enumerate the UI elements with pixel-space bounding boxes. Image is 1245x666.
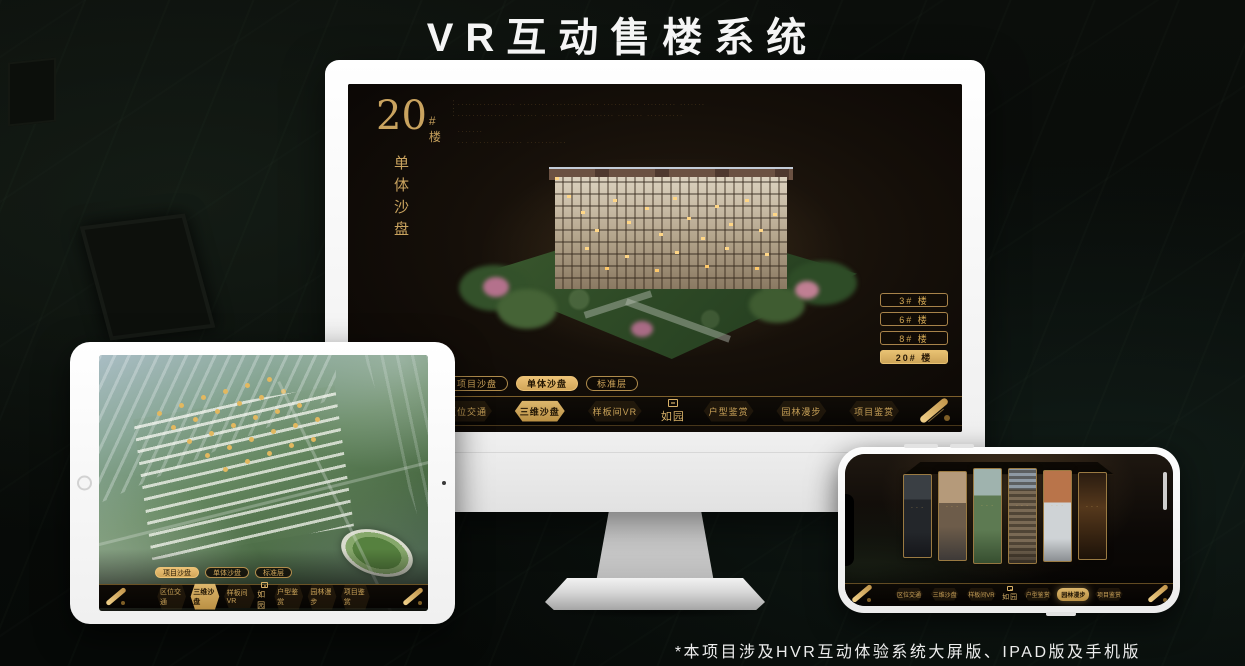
flower-tree bbox=[631, 321, 653, 337]
gallery-card[interactable] bbox=[1078, 472, 1107, 560]
flower-tree bbox=[483, 277, 509, 297]
phone-screen: 区位交通 三维沙盘 样板间VR 如园 户型鉴赏 园林漫步 项目鉴赏 bbox=[845, 454, 1173, 606]
volume-button[interactable] bbox=[904, 444, 938, 448]
residential-building bbox=[555, 177, 787, 289]
nav-item-location[interactable]: 区位交通 bbox=[155, 584, 188, 610]
floor-button-6[interactable]: 6# 楼 bbox=[880, 312, 948, 326]
tab-standard-floor[interactable]: 标准层 bbox=[255, 567, 292, 578]
nav-item-3d-sandbox[interactable]: 三维沙盘 bbox=[929, 588, 961, 601]
description-line: ··· ·············· ··········· bbox=[458, 138, 898, 149]
nav-item-garden-walk[interactable]: 园林漫步 bbox=[305, 584, 338, 610]
sandbox-sub-tabs: 项目沙盘 单体沙盘 标准层 bbox=[446, 376, 638, 391]
flower-tree bbox=[795, 281, 819, 299]
scroll-brush-icon[interactable] bbox=[105, 587, 125, 607]
floor-button-8[interactable]: 8# 楼 bbox=[880, 331, 948, 345]
seal-icon bbox=[1007, 586, 1013, 591]
building-facade bbox=[555, 177, 787, 289]
scroll-brush-tip bbox=[867, 598, 871, 602]
background-sign bbox=[8, 57, 56, 126]
brand-logo: 如园 bbox=[257, 582, 272, 611]
tab-project-sandbox[interactable]: 项目沙盘 bbox=[446, 376, 508, 391]
block-suffix: #楼 bbox=[429, 114, 447, 145]
phone-notch bbox=[845, 494, 854, 566]
nav-item-model-room-vr[interactable]: 样板间VR bbox=[222, 585, 258, 608]
nav-item-3d-sandbox[interactable]: 三维沙盘 bbox=[188, 584, 221, 610]
footnote: *本项目涉及HVR互动体验系统大屏版、IPAD版及手机版 bbox=[675, 638, 1141, 662]
tab-single-sandbox[interactable]: 单体沙盘 bbox=[205, 567, 249, 578]
seal-icon bbox=[261, 582, 268, 588]
volume-button[interactable] bbox=[950, 444, 974, 448]
scroll-brush-icon[interactable] bbox=[1147, 584, 1167, 604]
gallery-card[interactable] bbox=[903, 474, 932, 558]
tab-standard-floor[interactable]: 标准层 bbox=[586, 376, 638, 391]
brand-logo: 如园 bbox=[661, 399, 685, 424]
nav-item-floorplan[interactable]: 户型鉴赏 bbox=[1022, 588, 1054, 601]
page-title: VR互动售楼系统 bbox=[0, 5, 1245, 63]
tab-project-sandbox[interactable]: 项目沙盘 bbox=[155, 567, 199, 578]
bottom-nav-bar: 区位交通 三维沙盘 样板间VR 如园 户型鉴赏 园林漫步 项目鉴赏 bbox=[845, 583, 1173, 604]
description-line: ················ ········ ············· … bbox=[458, 100, 898, 111]
gallery-card[interactable] bbox=[1043, 470, 1072, 562]
description-line: ·············· ······· ·········· ······… bbox=[458, 111, 898, 122]
block-side-marks: ····· bbox=[450, 100, 456, 118]
nav-item-garden-walk[interactable]: 园林漫步 bbox=[1057, 588, 1089, 601]
camera-dot bbox=[442, 481, 446, 485]
monitor-stand-neck bbox=[595, 508, 715, 588]
building-markers[interactable] bbox=[157, 411, 162, 416]
sandbox-sub-tabs: 项目沙盘 单体沙盘 标准层 bbox=[155, 567, 292, 578]
nav-item-location[interactable]: 区位交通 bbox=[893, 588, 925, 601]
scroll-brush-icon[interactable] bbox=[918, 399, 950, 423]
bottom-nav-bar: 区位交通 三维沙盘 样板间VR 如园 户型鉴赏 园林漫步 项目鉴赏 bbox=[99, 584, 428, 608]
ipad-device: 项目沙盘 单体沙盘 标准层 区位交通 三维沙盘 样板间VR 如园 户型鉴赏 园林… bbox=[70, 342, 455, 624]
power-button[interactable] bbox=[1046, 612, 1076, 616]
nav-item-model-room-vr[interactable]: 样板间VR bbox=[964, 588, 998, 601]
scroll-brush-tip bbox=[121, 601, 125, 605]
description-paragraph: ················ ········ ············· … bbox=[458, 100, 898, 149]
scroll-brush-tip bbox=[1163, 598, 1167, 602]
floor-button-20[interactable]: 20# 楼 bbox=[880, 350, 948, 364]
floor-button-3[interactable]: 3# 楼 bbox=[880, 293, 948, 307]
tab-single-sandbox[interactable]: 单体沙盘 bbox=[516, 376, 578, 391]
brand-logo-text: 如园 bbox=[661, 408, 685, 424]
home-button[interactable] bbox=[77, 476, 92, 491]
nav-item-floorplan[interactable]: 户型鉴赏 bbox=[700, 401, 758, 422]
scroll-brush-tip bbox=[418, 601, 422, 605]
brand-logo-text: 如园 bbox=[257, 589, 272, 611]
side-indicator bbox=[1163, 472, 1167, 510]
monitor-stand-base bbox=[545, 578, 765, 610]
nav-item-model-room-vr[interactable]: 样板间VR bbox=[584, 401, 647, 422]
gallery-card[interactable] bbox=[938, 471, 967, 561]
floor-button-group: 3# 楼 6# 楼 8# 楼 20# 楼 bbox=[880, 293, 948, 364]
ipad-screen: 项目沙盘 单体沙盘 标准层 区位交通 三维沙盘 样板间VR 如园 户型鉴赏 园林… bbox=[99, 355, 428, 611]
scroll-brush-icon[interactable] bbox=[851, 584, 871, 604]
nav-item-project-view[interactable]: 项目鉴赏 bbox=[1093, 588, 1125, 601]
gallery-card[interactable] bbox=[1008, 468, 1037, 564]
scroll-brush-icon[interactable] bbox=[402, 587, 422, 607]
nav-item-project-view[interactable]: 项目鉴赏 bbox=[339, 584, 372, 610]
nav-item-garden-walk[interactable]: 园林漫步 bbox=[772, 401, 830, 422]
phone-device: 区位交通 三维沙盘 样板间VR 如园 户型鉴赏 园林漫步 项目鉴赏 bbox=[838, 447, 1180, 613]
scroll-brush-tip bbox=[944, 415, 950, 421]
brand-logo-text: 如园 bbox=[1002, 592, 1018, 602]
brand-logo: 如园 bbox=[1002, 586, 1018, 602]
nav-item-floorplan[interactable]: 户型鉴赏 bbox=[272, 584, 305, 610]
block-badge: 20 #楼 ····· 单体沙盘 bbox=[376, 96, 456, 265]
seal-icon bbox=[668, 399, 678, 407]
description-line: ······· bbox=[458, 127, 898, 138]
block-title-vertical: 单体沙盘 bbox=[390, 155, 411, 265]
nav-item-3d-sandbox[interactable]: 三维沙盘 bbox=[511, 401, 569, 422]
building-render[interactable] bbox=[463, 169, 863, 364]
lit-windows bbox=[555, 177, 559, 180]
nav-item-project-view[interactable]: 项目鉴赏 bbox=[845, 401, 903, 422]
gallery-card[interactable] bbox=[973, 468, 1002, 564]
block-number: 20 bbox=[376, 96, 427, 136]
scene-gallery bbox=[903, 468, 1107, 564]
tree bbox=[497, 289, 557, 329]
